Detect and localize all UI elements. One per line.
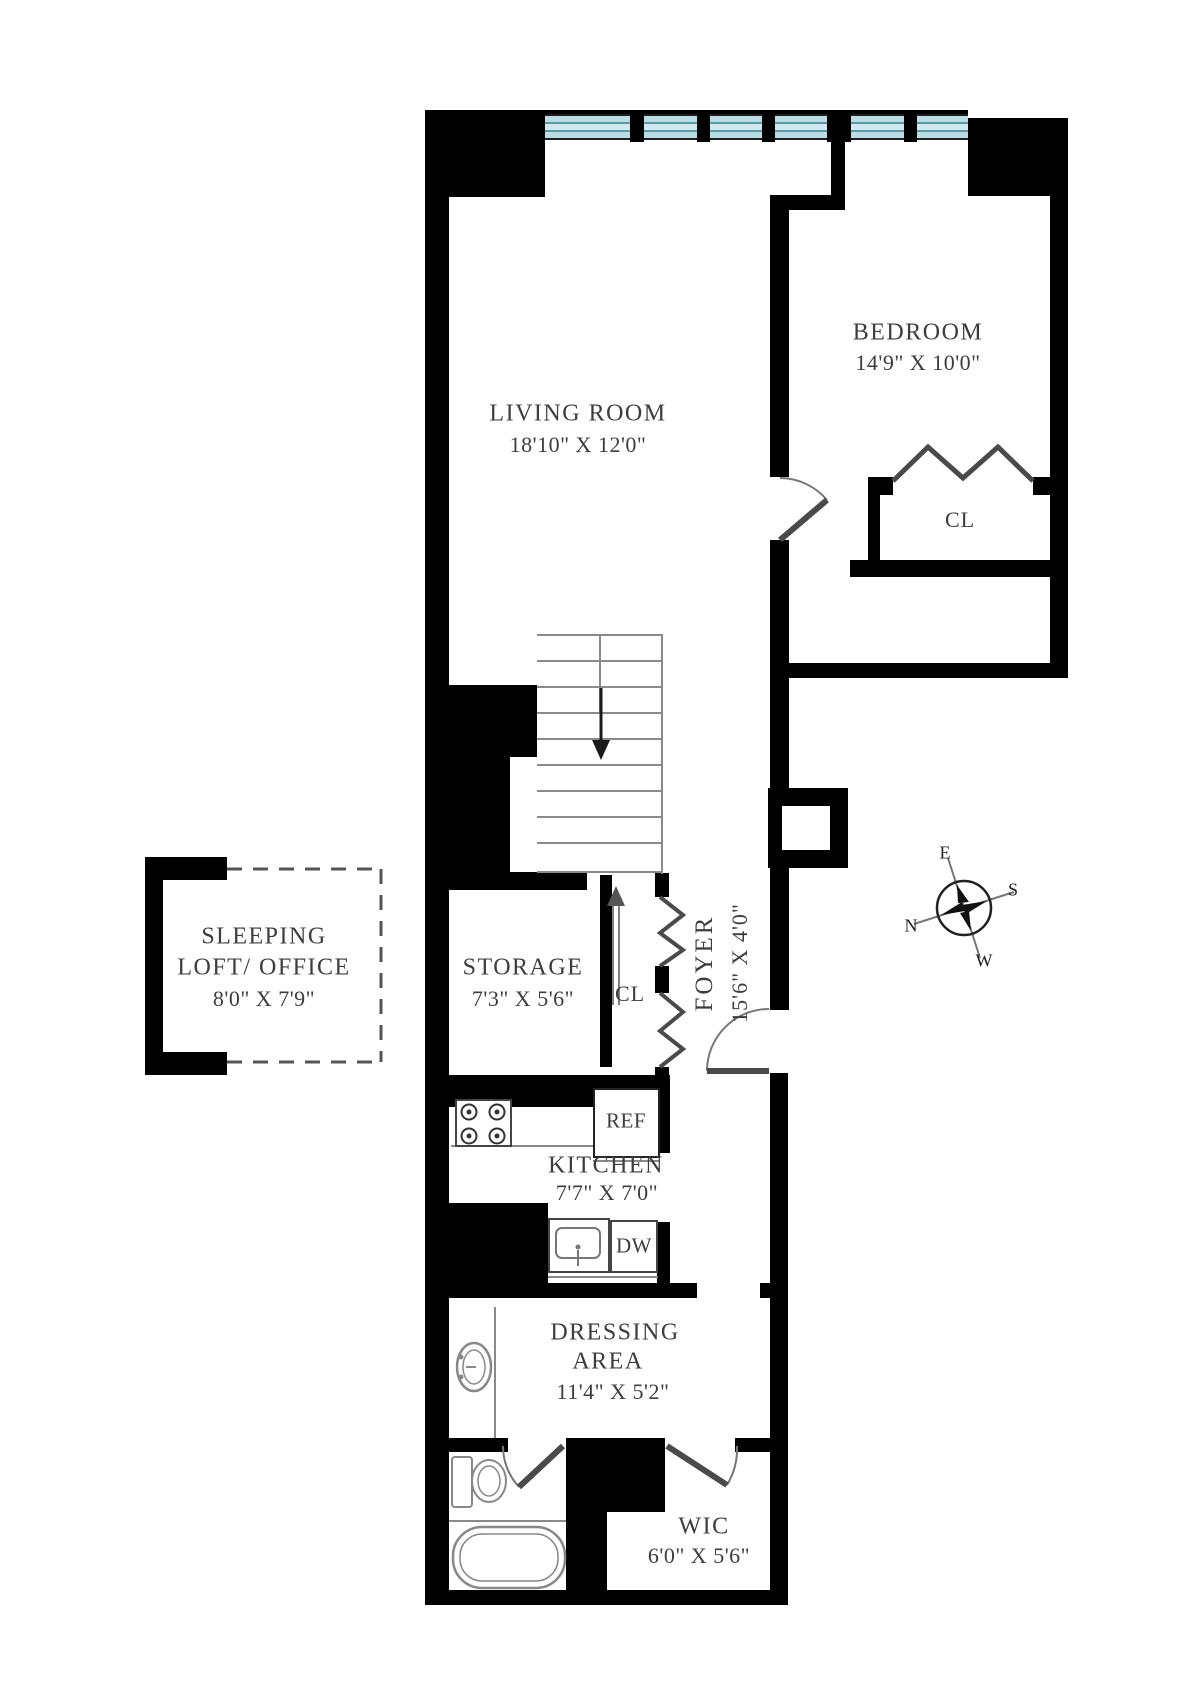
wic-label: WIC	[678, 1514, 729, 1541]
storage-dims: 7'3" X 5'6"	[472, 986, 574, 1012]
kitchen-sink-counter	[548, 1218, 610, 1273]
foyer-dims: 15'6" X 4'0"	[723, 903, 757, 1023]
foyer-closet-bifold-upper	[660, 897, 683, 966]
compass-icon	[914, 858, 1014, 958]
bathtub	[453, 1527, 565, 1588]
foyer-closet-bifold-lower	[660, 993, 683, 1067]
stair-edge	[537, 634, 663, 636]
sleeping-loft-label-1: SLEEPING	[201, 924, 326, 951]
stair-edge	[661, 634, 663, 874]
living-room-label: LIVING ROOM	[489, 401, 666, 428]
compass-north: N	[905, 916, 918, 937]
living-room-dims: 18'10" X 12'0"	[510, 432, 647, 458]
bedroom-closet-bifold-doors	[893, 447, 1033, 481]
dressing-area-label-1: DRESSING	[550, 1320, 679, 1347]
window-mullion	[630, 111, 644, 142]
bedroom-closet-label: CL	[945, 507, 975, 533]
compass-south: S	[1008, 880, 1018, 901]
sleeping-loft-label-2: LOFT/ OFFICE	[177, 955, 350, 982]
bathroom-door	[503, 1446, 563, 1487]
dishwasher-label: DW	[616, 1234, 652, 1259]
toilet	[452, 1457, 506, 1507]
kitchen-dims: 7'7" X 7'0"	[556, 1180, 658, 1206]
compass-west: W	[976, 951, 993, 972]
staircase	[537, 635, 663, 872]
window-mullion	[904, 111, 917, 142]
bedroom-dims: 14'9" X 10'0"	[855, 350, 980, 376]
kitchen-label: KITCHEN	[548, 1153, 664, 1180]
wic-dims: 6'0" X 5'6"	[648, 1543, 750, 1569]
bath-divider	[449, 1520, 566, 1522]
window-mullion	[762, 111, 775, 142]
compass-east: E	[940, 843, 951, 864]
vanity-edge	[494, 1307, 496, 1438]
bedroom-door	[780, 478, 827, 540]
refrigerator-label: REF	[606, 1109, 646, 1134]
window-mullion	[697, 111, 710, 142]
sleeping-loft-dims: 8'0" X 7'9"	[213, 986, 315, 1012]
bedroom-label: BEDROOM	[853, 320, 984, 347]
dressing-area-dims: 11'4" X 5'2"	[557, 1379, 670, 1405]
storage-label: STORAGE	[463, 955, 584, 982]
foyer-label: FOYER	[687, 903, 723, 1023]
dressing-sink	[457, 1343, 491, 1391]
dressing-area-label-2: AREA	[572, 1349, 643, 1376]
floor-plan: LIVING ROOM 18'10" X 12'0" BEDROOM 14'9"…	[0, 0, 1200, 1694]
wic-door	[667, 1446, 737, 1485]
foyer-label-block: FOYER 15'6" X 4'0"	[687, 903, 757, 1023]
stove	[455, 1099, 512, 1147]
foyer-closet-label: CL	[615, 981, 645, 1007]
stairs-down-arrow	[592, 688, 610, 760]
